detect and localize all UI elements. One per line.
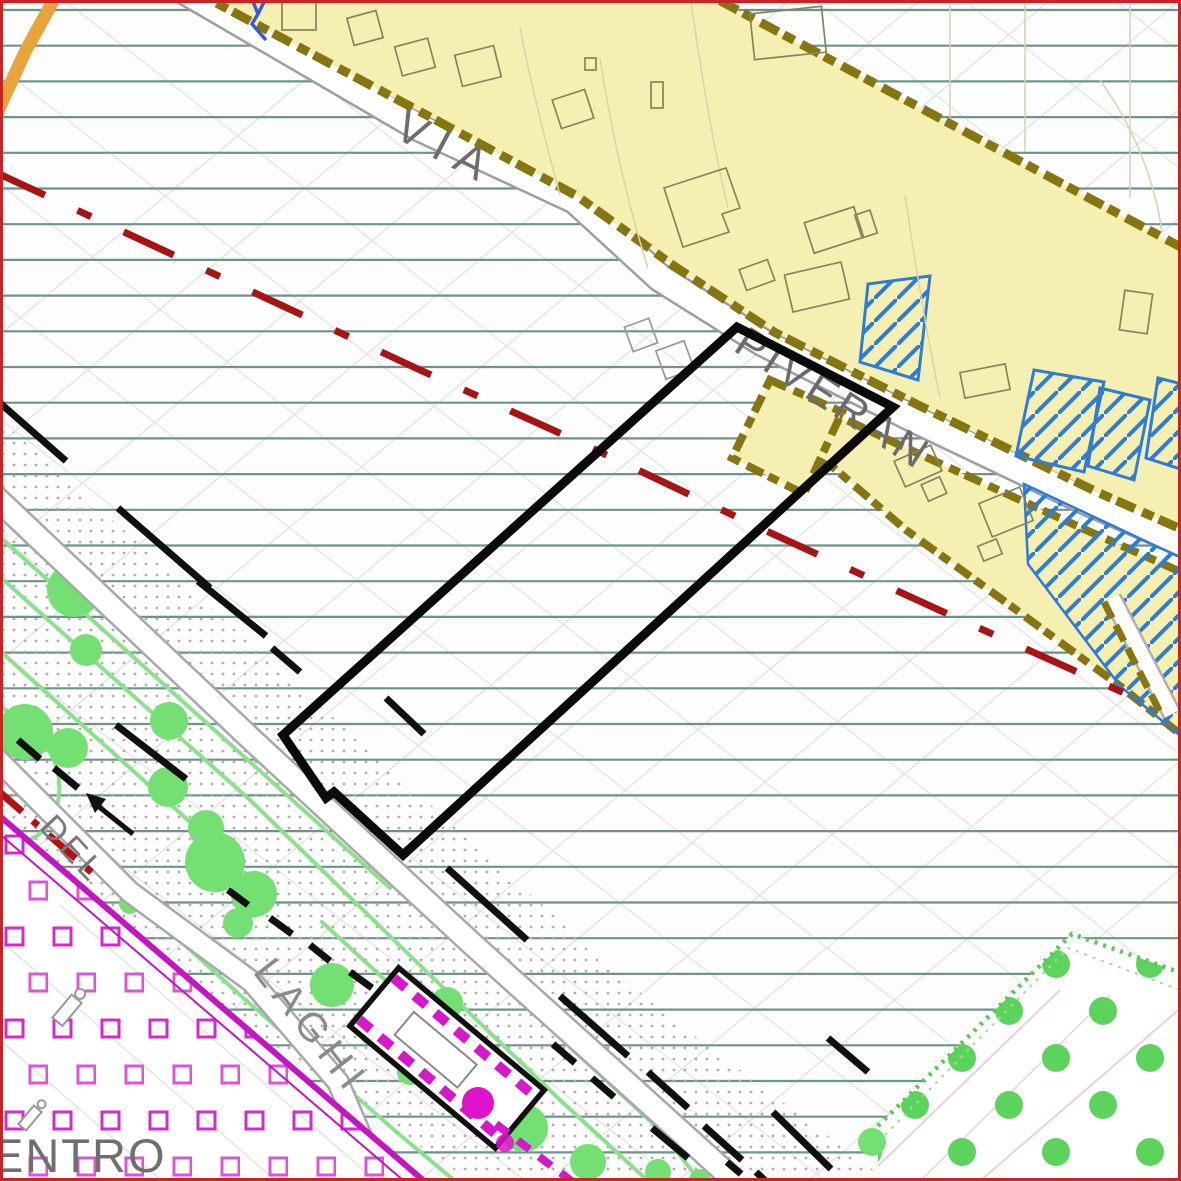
map-canvas[interactable]: DEL LAGHI ENTRO	[0, 0, 1181, 1181]
street-label-centro: ENTRO	[0, 1129, 167, 1181]
map-viewport[interactable]: DEL LAGHI ENTRO	[0, 0, 1181, 1181]
